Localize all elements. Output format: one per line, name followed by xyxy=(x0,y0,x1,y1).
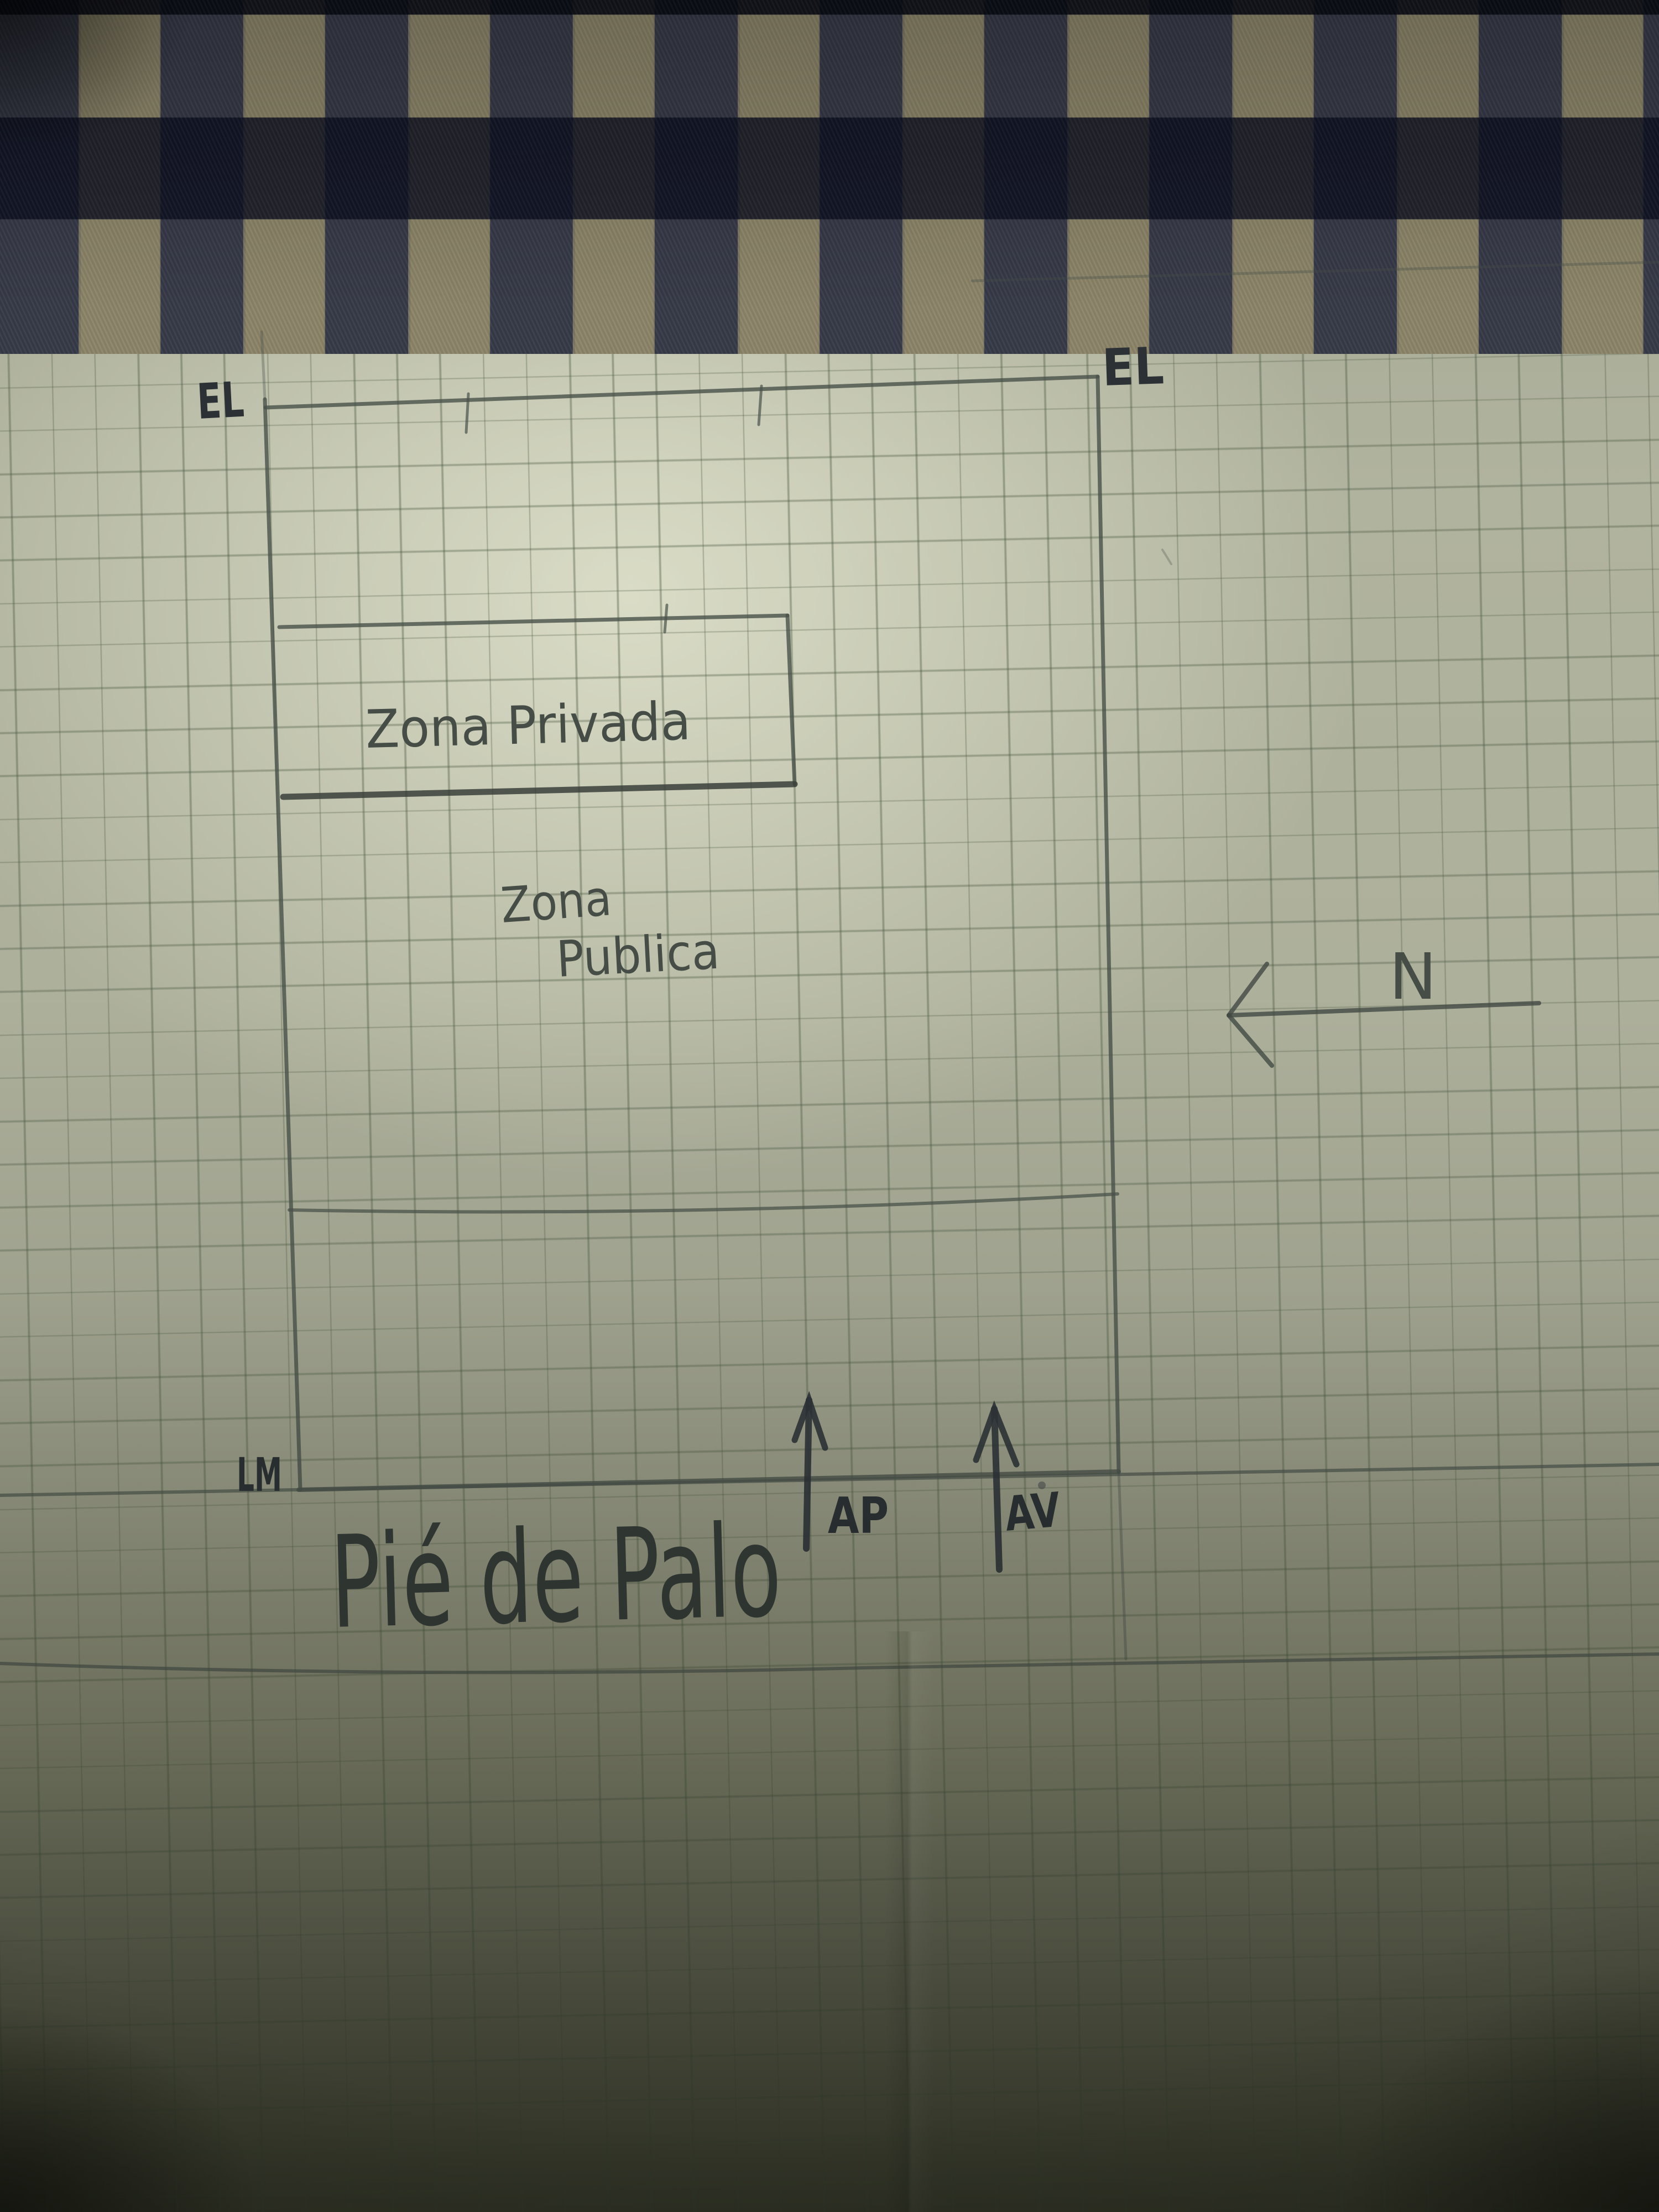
north-arrow xyxy=(1229,964,1539,1066)
photo-of-hand-drawn-plot-plan: EL EL LM Zona Privada Zona Publica Pié d… xyxy=(0,0,1659,2212)
private-zone-label: Zona Privada xyxy=(365,691,692,760)
lot-right-boundary-below-street xyxy=(1119,1472,1126,1659)
private-zone-box-top-tick xyxy=(665,605,667,632)
private-zone-box-bottom xyxy=(283,784,795,797)
top-edge-tick-mark-2 xyxy=(759,386,761,425)
private-zone-box-right xyxy=(787,615,795,784)
north-arrow-head-upper xyxy=(1229,964,1267,1015)
lot-top-boundary-line xyxy=(265,377,1098,408)
north-label: N xyxy=(1389,940,1437,1014)
zone-divide-line xyxy=(289,1194,1118,1212)
pencil-sketch-layer: EL EL LM Zona Privada Zona Publica Pié d… xyxy=(0,0,1659,2212)
paper-top-ruled-line xyxy=(972,262,1659,281)
access-arrow-right-label: AV xyxy=(1003,1483,1063,1542)
corner-label-top-right: EL xyxy=(1101,336,1165,398)
paper-blemish-stroke xyxy=(1162,550,1171,564)
street-name-label: Pié de Palo xyxy=(328,1498,783,1657)
north-arrow-head-lower xyxy=(1229,1015,1272,1066)
public-zone-label-line2: Publica xyxy=(555,922,721,989)
lot-left-boundary-extension xyxy=(262,332,265,399)
private-zone-box-top xyxy=(279,615,787,627)
access-arrow-left-shaft xyxy=(806,1400,809,1548)
corner-label-top-left: EL xyxy=(196,371,246,430)
access-arrow-left-label: AP xyxy=(828,1487,889,1545)
lot-left-boundary-line xyxy=(265,399,300,1490)
access-arrow-right-shaft xyxy=(994,1409,999,1569)
lot-right-boundary-line xyxy=(1098,377,1119,1472)
street-far-edge-line xyxy=(0,1654,1659,1672)
public-zone-label-line1: Zona xyxy=(499,869,613,934)
north-arrow-shaft xyxy=(1229,1003,1539,1015)
municipal-line-label: LM xyxy=(237,1448,282,1502)
